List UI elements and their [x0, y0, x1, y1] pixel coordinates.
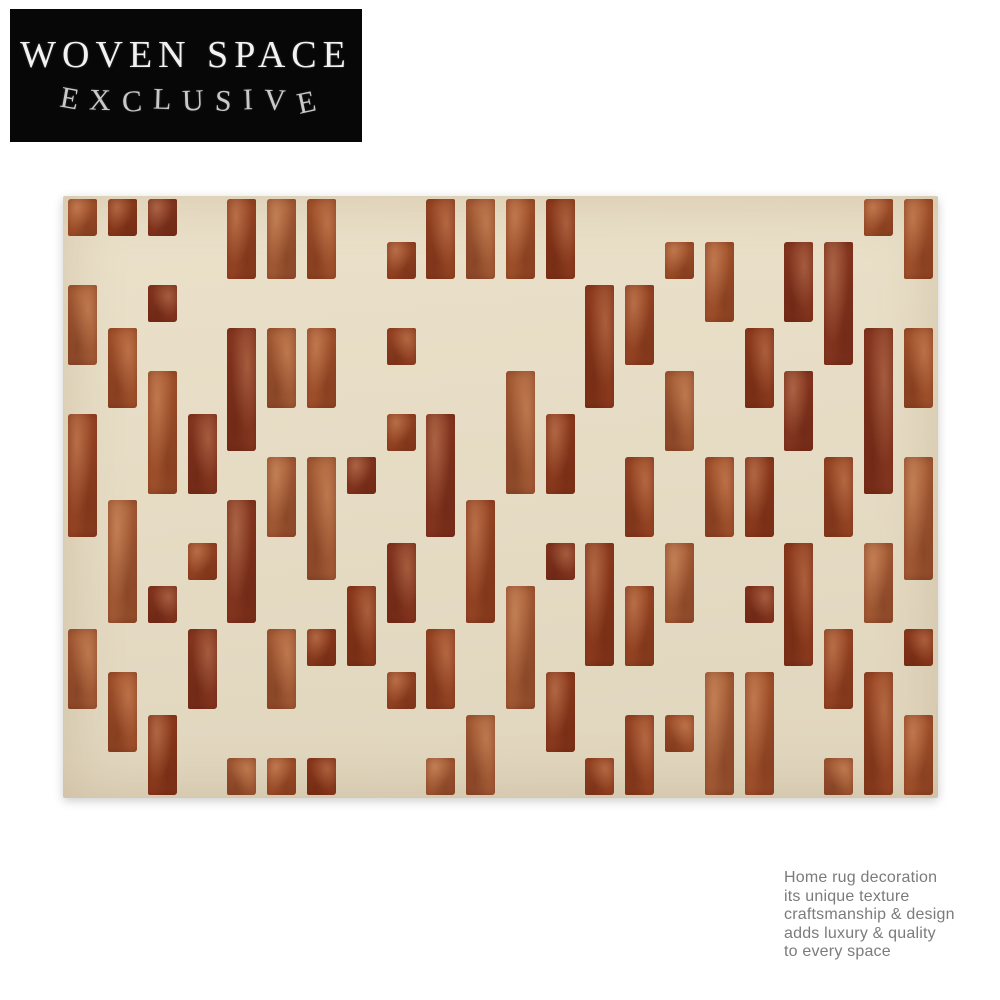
caption-line: to every space	[784, 943, 989, 962]
caption-line: adds luxury & quality	[784, 925, 989, 944]
rug-bar	[546, 543, 575, 579]
rug-bar	[227, 758, 256, 794]
rug-bar	[864, 199, 893, 235]
rug-bar	[68, 199, 97, 235]
rug-bar	[904, 457, 933, 579]
rug-bar	[864, 672, 893, 794]
rug-bar	[784, 242, 813, 321]
rug-bar	[188, 414, 217, 493]
rug-bar	[227, 199, 256, 278]
brand-tagline: EXCLUSIVE	[46, 84, 326, 118]
rug-bar	[387, 414, 416, 450]
rug-bar	[307, 457, 336, 579]
rug-bar	[824, 629, 853, 708]
rug-bar	[387, 242, 416, 278]
rug-bar	[347, 457, 376, 493]
rug-bar	[904, 199, 933, 278]
rug-bar	[68, 414, 97, 536]
rug-bar	[665, 543, 694, 622]
rug-bar	[68, 629, 97, 708]
rug-bar	[108, 672, 137, 751]
rug-bar	[625, 457, 654, 536]
rug-bar	[426, 629, 455, 708]
rug-bar	[426, 758, 455, 794]
rug-bar	[68, 285, 97, 364]
rug-bar	[466, 199, 495, 278]
rug-bar	[227, 328, 256, 450]
rug-bar	[267, 328, 296, 407]
rug-bar	[705, 672, 734, 794]
rug-bar	[387, 543, 416, 622]
caption-line: its unique texture	[784, 888, 989, 907]
rug-bar	[148, 586, 177, 622]
rug-bar	[625, 285, 654, 364]
rug-bar	[546, 672, 575, 751]
rug-bar	[665, 715, 694, 751]
rug-bar	[506, 199, 535, 278]
rug-bar	[387, 672, 416, 708]
rug-bar	[904, 629, 933, 665]
caption-line: Home rug decoration	[784, 869, 989, 888]
rug-bar	[784, 543, 813, 665]
rug-bar	[824, 242, 853, 364]
rug-bar	[267, 629, 296, 708]
rug-bar	[864, 543, 893, 622]
caption: Home rug decoration its unique texture c…	[784, 869, 989, 962]
rug-bar	[307, 629, 336, 665]
rug-bar	[108, 500, 137, 622]
rug-bar	[546, 414, 575, 493]
rug-bar	[148, 199, 177, 235]
caption-line: craftsmanship & design	[784, 906, 989, 925]
rug-bar	[506, 371, 535, 493]
rug-bar	[705, 242, 734, 321]
rug-bar	[148, 285, 177, 321]
rug-bar	[347, 586, 376, 665]
rug-bar	[307, 199, 336, 278]
rug-bar	[108, 328, 137, 407]
rug-bar	[745, 457, 774, 536]
rug-bar	[824, 457, 853, 536]
rug-pattern	[63, 196, 938, 798]
brand-banner: WOVEN SPACE EXCLUSIVE	[10, 9, 362, 142]
rug-bar	[307, 758, 336, 794]
rug-image	[63, 196, 938, 798]
rug-bar	[188, 543, 217, 579]
rug-bar	[148, 371, 177, 493]
rug-bar	[745, 328, 774, 407]
rug-bar	[745, 672, 774, 794]
rug-bar	[745, 586, 774, 622]
rug-bar	[546, 199, 575, 278]
rug-bar	[625, 715, 654, 794]
rug-bar	[148, 715, 177, 794]
rug-bar	[267, 199, 296, 278]
rug-bar	[864, 328, 893, 493]
product-showcase: { "brand": { "line1": "WOVEN SPACE", "li…	[0, 0, 1000, 1000]
rug-bar	[466, 500, 495, 622]
rug-bar	[188, 629, 217, 708]
rug-bar	[904, 328, 933, 407]
rug-bar	[585, 543, 614, 665]
rug-bar	[625, 586, 654, 665]
rug-bar	[267, 758, 296, 794]
rug-bar	[665, 371, 694, 450]
brand-name: WOVEN SPACE	[20, 33, 352, 77]
rug-bar	[267, 457, 296, 536]
rug-bar	[585, 758, 614, 794]
rug-bar	[227, 500, 256, 622]
rug-bar	[824, 758, 853, 794]
rug-bar	[466, 715, 495, 794]
rug-bar	[665, 242, 694, 278]
rug-bar	[705, 457, 734, 536]
rug-bar	[307, 328, 336, 407]
rug-bar	[426, 199, 455, 278]
rug-bar	[387, 328, 416, 364]
rug-bar	[585, 285, 614, 407]
rug-bar	[784, 371, 813, 450]
rug-bar	[108, 199, 137, 235]
rug-bar	[426, 414, 455, 536]
rug-bar	[904, 715, 933, 794]
rug-bar	[506, 586, 535, 708]
